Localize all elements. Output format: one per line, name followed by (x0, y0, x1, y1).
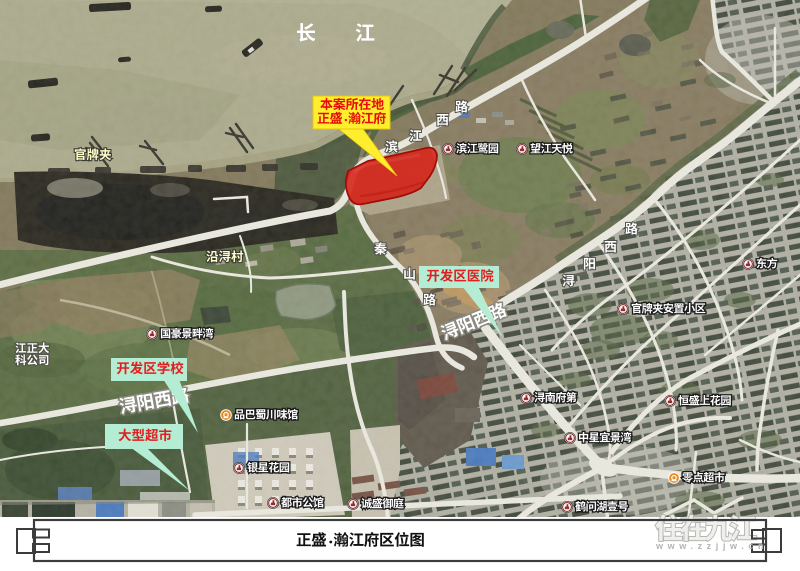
svg-text:www.zzjjw.cn: www.zzjjw.cn (655, 541, 768, 551)
